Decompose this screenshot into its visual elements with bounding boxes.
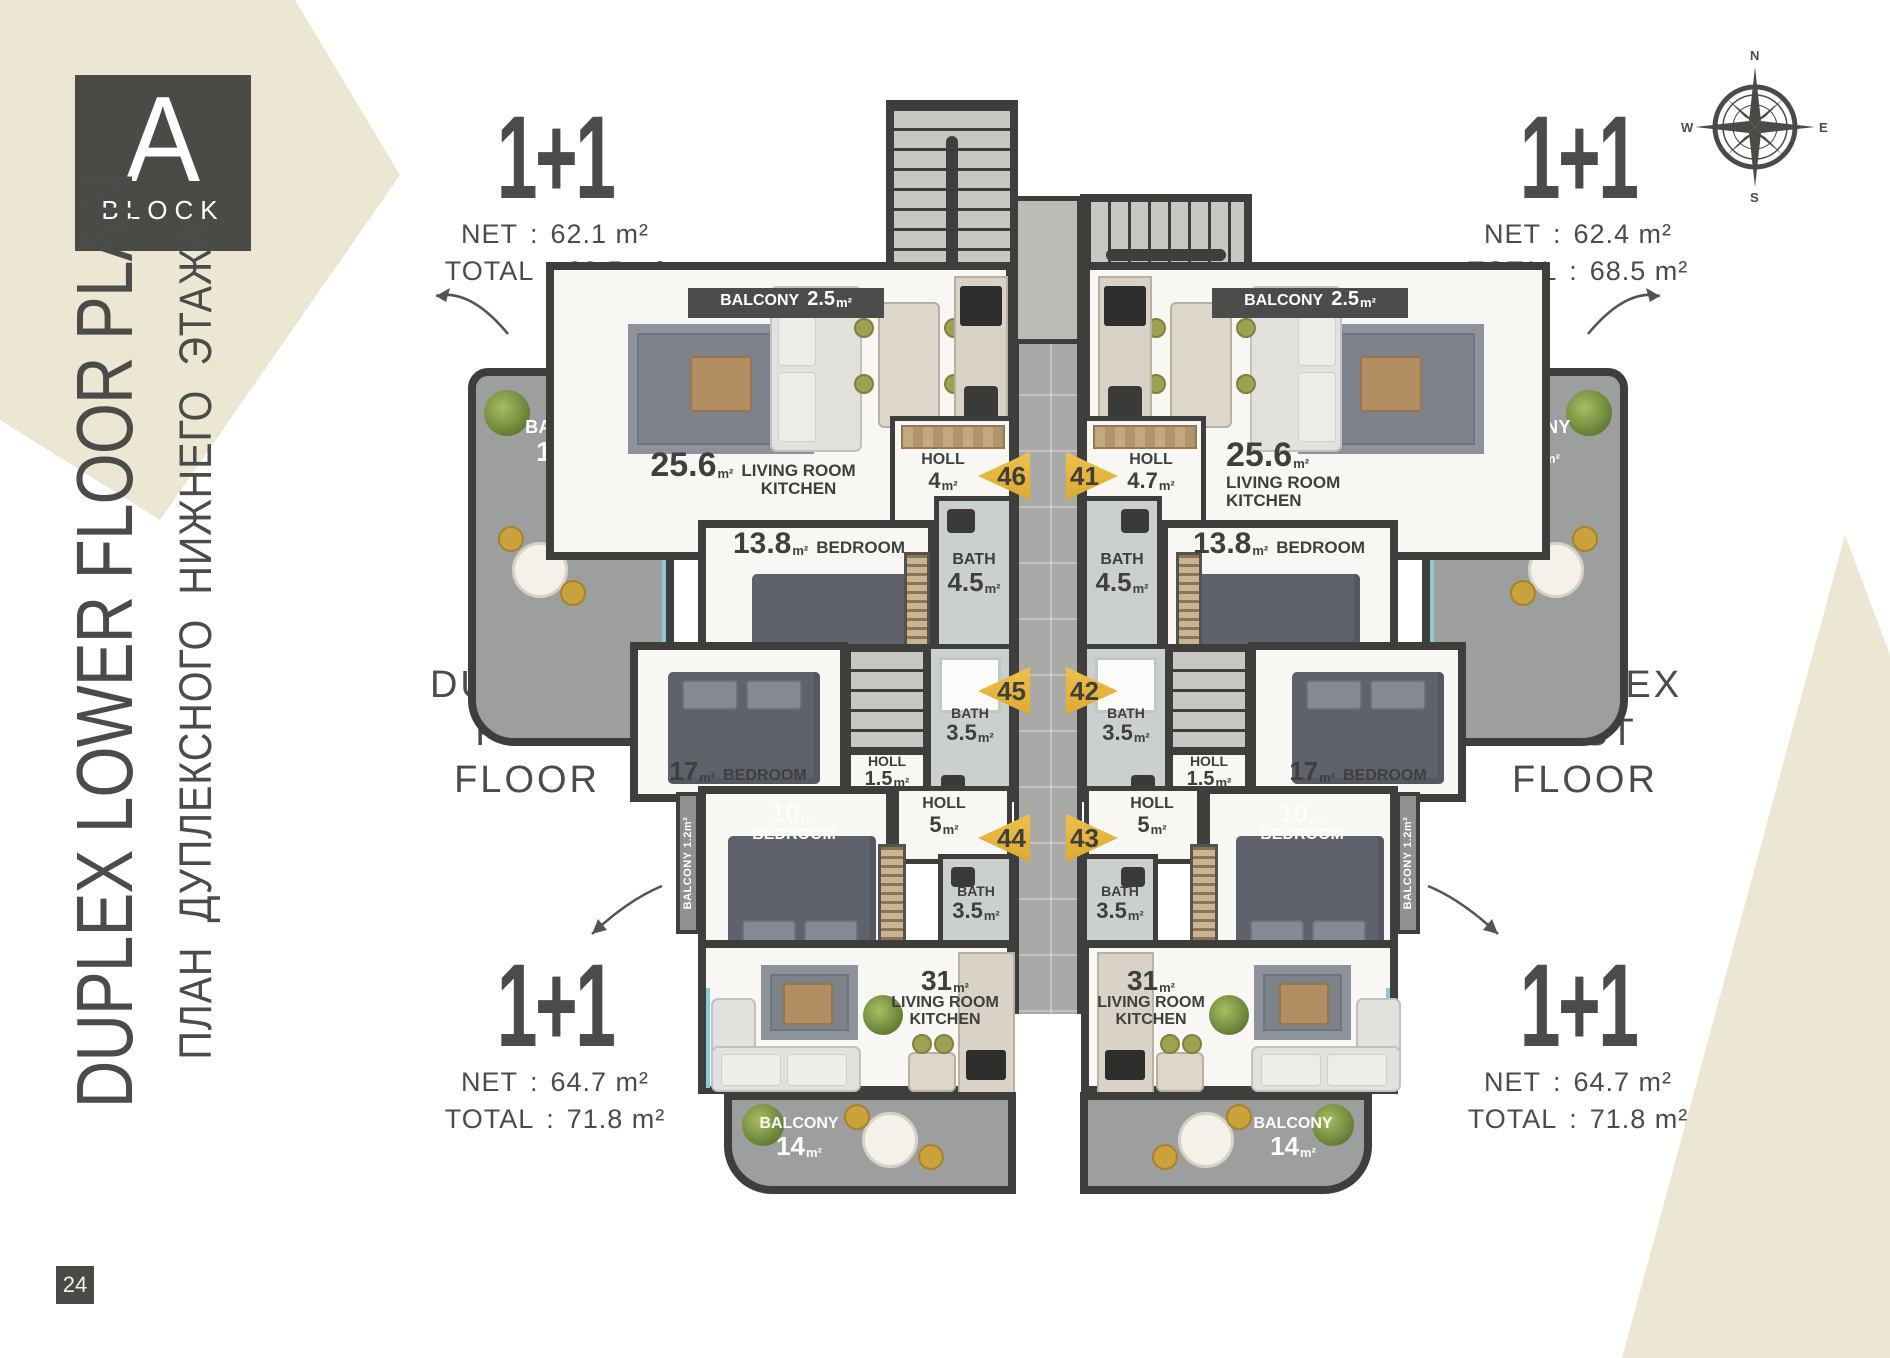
stove-icon (960, 286, 1002, 326)
m2-unit: m² (1159, 981, 1175, 995)
m2-unit: m² (942, 479, 958, 493)
balcony-chair (1510, 580, 1536, 606)
balcony-2-5-band-tr: BALCONY 2.5m² (1212, 288, 1408, 318)
coffee-table (783, 983, 833, 1025)
duplex-stairs-ml (846, 644, 928, 752)
floorplan-page: A BLOCK DUPLEX LOWER FLOOR PLAN ПЛАН ДУП… (0, 0, 1890, 1358)
sofa-cushion (787, 1054, 847, 1086)
bedroom-label-mr: 17m² BEDROOM (1268, 758, 1448, 785)
balcony-word: BALCONY (682, 851, 694, 909)
bath-label-ml: BATH 3.5m² (926, 706, 1014, 744)
holl-label-ml: HOLL 1.5m² (846, 754, 928, 790)
dining-chair (1236, 318, 1256, 338)
balcony-area: 2.5 (1331, 288, 1359, 310)
bath-area: 3.5 (952, 899, 983, 922)
wardrobe (878, 844, 906, 952)
bedroom-area: 10 (771, 800, 800, 827)
balcony-word: BALCONY (1402, 851, 1414, 909)
m2-unit: m² (1309, 813, 1325, 827)
bedroom-area: 17 (669, 758, 698, 785)
pillow (1306, 680, 1362, 710)
sink-icon (947, 509, 975, 533)
pillow (682, 680, 738, 710)
m2-unit: m² (806, 1146, 822, 1160)
m2-unit: m² (1159, 479, 1175, 493)
m2-unit: m² (801, 813, 817, 827)
stair-landing (1012, 196, 1082, 344)
holl-word: HOLL (900, 452, 986, 469)
closet (1093, 425, 1197, 449)
wardrobe (1190, 844, 1218, 952)
sofa-cushion (1261, 1054, 1321, 1086)
bath-word: BATH (1082, 706, 1170, 721)
bath-word: BATH (926, 706, 1014, 721)
bedroom-label-bl: 10m² BEDROOM (724, 800, 864, 844)
holl-area: 5 (929, 813, 941, 836)
dining-chair (1182, 1034, 1202, 1054)
holl-area: 4 (928, 469, 940, 492)
m2-unit: m² (1151, 823, 1167, 837)
dining-table (1156, 1052, 1204, 1092)
kitchen-word: KITCHEN (880, 1012, 1010, 1029)
bedroom-label-tl: 13.8m² BEDROOM (724, 528, 914, 560)
m2-unit: m² (984, 909, 1000, 923)
kitchen-word: KITCHEN (1226, 492, 1476, 510)
m2-unit: m² (1133, 582, 1149, 596)
pillow (746, 680, 802, 710)
holl-label-bl: HOLL 5m² (894, 796, 994, 836)
m2-unit: m² (943, 823, 959, 837)
stove-icon (1105, 1050, 1145, 1080)
living-area: 25.6 (1226, 438, 1292, 474)
arrow-bottom-right (1422, 878, 1514, 946)
dining-chair (1236, 374, 1256, 394)
dining-chair (912, 1034, 932, 1054)
sink-icon (1121, 509, 1149, 533)
m2-unit: m² (1252, 544, 1268, 558)
m2-unit: m² (1360, 295, 1376, 310)
balcony-word: BALCONY (720, 292, 799, 310)
balcony-chair (1152, 1144, 1178, 1170)
m2-unit: m² (1319, 771, 1335, 785)
balcony-strip-bl: BALCONY 1.2m² (676, 792, 700, 934)
floor-plan: ELEVATOR ELEVATOR BALCONY 11.5m² (0, 0, 1890, 1358)
balcony-label-br: BALCONY 14m² (1238, 1116, 1348, 1160)
balcony-strip-label: BALCONY 1.2m² (682, 817, 694, 910)
coffee-table (1360, 356, 1422, 412)
sofa-chaise (1251, 1046, 1401, 1092)
sofa-cushion (721, 1054, 781, 1086)
balcony-chair (918, 1144, 944, 1170)
m2-unit: m² (682, 817, 694, 831)
balcony-strip-label: BALCONY 1.2m² (1402, 817, 1414, 910)
kitchen-word: KITCHEN (1086, 1012, 1216, 1029)
m2-unit: m² (792, 544, 808, 558)
arrow-bottom-left (576, 878, 668, 946)
bedroom-area: 17 (1289, 758, 1318, 785)
window-line (706, 988, 710, 1088)
balcony-label-bl: BALCONY 14m² (744, 1116, 854, 1160)
bath-area: 4.5 (947, 569, 983, 596)
m2-unit: m² (1300, 1146, 1316, 1160)
living-area: 25.6 (650, 448, 716, 484)
bedroom-label-tr: 13.8m² BEDROOM (1184, 528, 1374, 560)
balcony-area: 1.2 (682, 831, 694, 848)
holl-area: 5 (1137, 813, 1149, 836)
balcony-area: 1.2 (1402, 831, 1414, 848)
living-word: LIVING ROOM (1086, 995, 1216, 1012)
bath-label-tr: BATH 4.5m² (1082, 552, 1162, 596)
dining-table (878, 302, 940, 428)
holl-word: HOLL (894, 796, 994, 813)
living-label-bl: 31m² LIVING ROOM KITCHEN (880, 966, 1010, 1029)
bedroom-label-ml: 17m² BEDROOM (648, 758, 828, 785)
living-label-tr: 25.6m² LIVING ROOM KITCHEN (1226, 438, 1476, 509)
bedroom-word: BEDROOM (724, 827, 864, 844)
bath-label-tl: BATH 4.5m² (934, 552, 1014, 596)
bath-area: 3.5 (1096, 899, 1127, 922)
living-word: LIVING ROOM (1226, 474, 1476, 492)
balcony-area: 14 (1270, 1133, 1299, 1160)
bedroom-word: BEDROOM (723, 768, 807, 785)
living-area: 31 (921, 966, 952, 995)
living-area: 31 (1127, 966, 1158, 995)
living-label-br: 31m² LIVING ROOM KITCHEN (1086, 966, 1216, 1029)
bath-area: 4.5 (1095, 569, 1131, 596)
bedroom-word: BEDROOM (1343, 768, 1427, 785)
dining-chair (854, 318, 874, 338)
m2-unit: m² (1128, 909, 1144, 923)
bedroom-area: 13.8 (1193, 528, 1251, 560)
dining-chair (934, 1034, 954, 1054)
balcony-word: BALCONY (1244, 292, 1323, 310)
bath-word: BATH (1082, 884, 1158, 899)
holl-label-tl: HOLL 4m² (900, 452, 986, 492)
m2-unit: m² (718, 467, 734, 481)
bath-area: 3.5 (946, 721, 977, 744)
living-word: LIVING ROOM (880, 995, 1010, 1012)
dining-chair (854, 374, 874, 394)
holl-word: HOLL (1108, 452, 1194, 469)
balcony-chair (560, 580, 586, 606)
bedroom-word: BEDROOM (1276, 539, 1365, 557)
balcony-chair (1572, 526, 1598, 552)
bath-label-bl: BATH 3.5m² (938, 884, 1014, 922)
holl-word: HOLL (1102, 796, 1202, 813)
stove-icon (966, 1050, 1006, 1080)
sofa-cushion (1298, 372, 1336, 442)
dining-table (1170, 302, 1232, 428)
kitchen-word: KITCHEN (741, 480, 855, 498)
m2-unit: m² (1402, 817, 1414, 831)
holl-word: HOLL (1168, 754, 1250, 769)
holl-label-br: HOLL 5m² (1102, 796, 1202, 836)
bedroom-area: 13.8 (733, 528, 791, 560)
bedroom-word: BEDROOM (1232, 827, 1372, 844)
sofa-chaise (711, 1046, 861, 1092)
closet (901, 425, 1005, 449)
living-label-tl: 25.6m² LIVING ROOM KITCHEN (628, 448, 878, 498)
sofa-cushion (778, 372, 816, 442)
bedroom-area: 10 (1279, 800, 1308, 827)
balcony-chair (498, 526, 524, 552)
duplex-stairs-mr (1168, 644, 1250, 752)
bath-area: 3.5 (1102, 721, 1133, 744)
bedroom-word: BEDROOM (816, 539, 905, 557)
m2-unit: m² (1134, 731, 1150, 745)
dining-chair (1160, 1034, 1180, 1054)
m2-unit: m² (985, 582, 1001, 596)
stove-icon (1104, 286, 1146, 326)
pillow (1370, 680, 1426, 710)
arrow-top-right (1584, 280, 1674, 342)
m2-unit: m² (978, 731, 994, 745)
holl-word: HOLL (846, 754, 928, 769)
balcony-area: 2.5 (807, 288, 835, 310)
holl-label-tr: HOLL 4.7m² (1108, 452, 1194, 492)
balcony-2-5-band-tl: BALCONY 2.5m² (688, 288, 884, 318)
bath-label-mr: BATH 3.5m² (1082, 706, 1170, 744)
m2-unit: m² (1293, 457, 1309, 471)
holl-area: 4.7 (1127, 469, 1158, 492)
balcony-strip-br: BALCONY 1.2m² (1396, 792, 1420, 934)
stair-rail (1106, 249, 1226, 261)
m2-unit: m² (953, 981, 969, 995)
m2-unit: m² (836, 295, 852, 310)
dining-table (908, 1052, 956, 1092)
bath-word: BATH (938, 884, 1014, 899)
coffee-table (690, 356, 752, 412)
bath-label-br: BATH 3.5m² (1082, 884, 1158, 922)
balcony-table (862, 1112, 918, 1168)
coffee-table (1279, 983, 1329, 1025)
holl-label-mr: HOLL 1.5m² (1168, 754, 1250, 790)
living-word: LIVING ROOM (741, 462, 855, 480)
bedroom-label-br: 10m² BEDROOM (1232, 800, 1372, 844)
arrow-top-left (422, 280, 512, 342)
sofa-cushion (1327, 1054, 1387, 1086)
balcony-area: 14 (776, 1133, 805, 1160)
m2-unit: m² (699, 771, 715, 785)
